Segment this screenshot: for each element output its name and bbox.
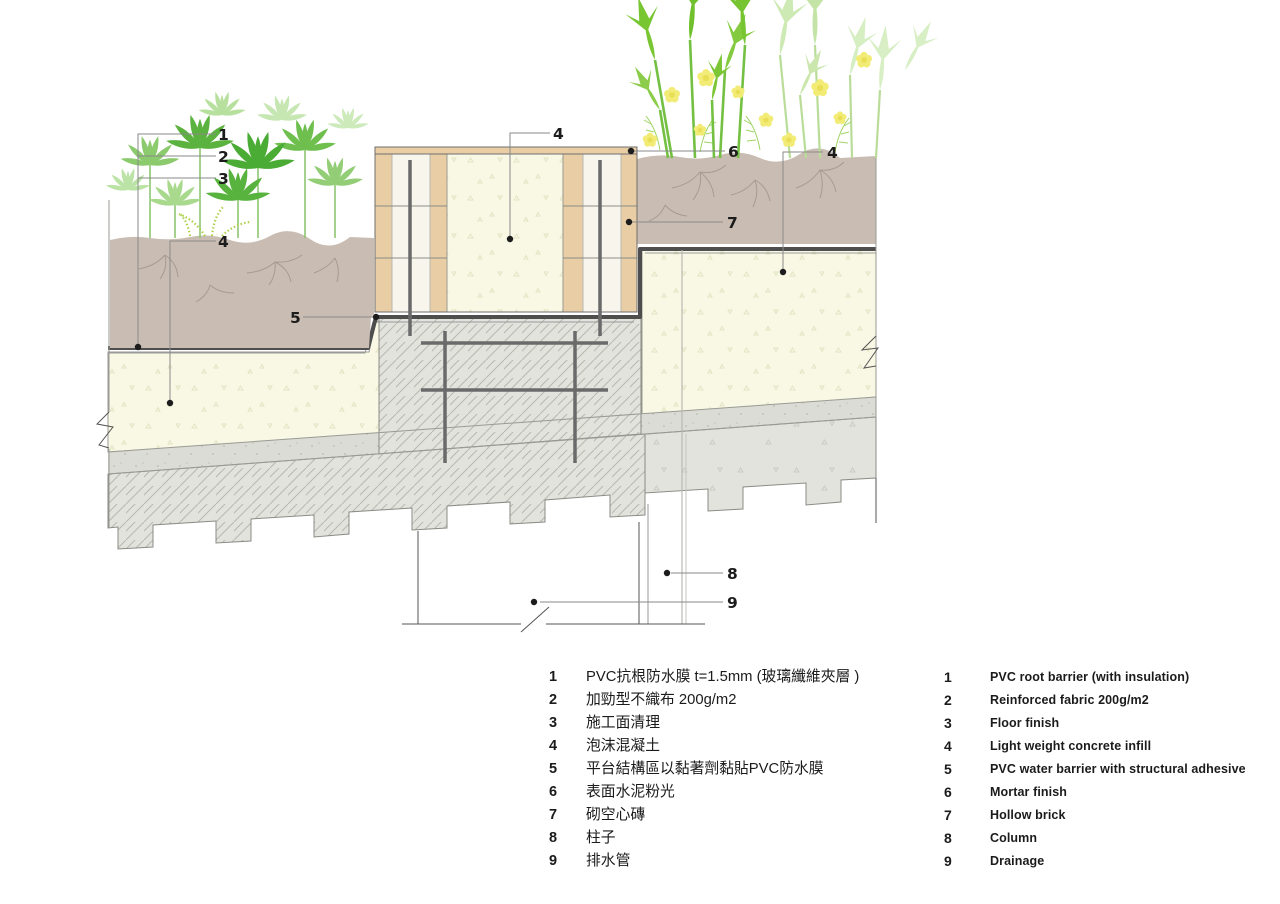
legend-text: 砌空心磚 <box>586 804 645 827</box>
legend-text: 排水管 <box>586 850 630 873</box>
legend-row: 5PVC water barrier with structural adhes… <box>944 758 1280 781</box>
callout-8: 8 <box>727 565 738 583</box>
legend-num: 3 <box>549 712 565 735</box>
legend-num: 3 <box>944 712 960 735</box>
legend-text: 平台結構區以黏著劑黏貼PVC防水膜 <box>586 758 824 781</box>
legend-row: 4泡沫混凝土 <box>549 735 941 758</box>
legend-text: Drainage <box>990 850 1044 873</box>
flowers <box>643 52 872 147</box>
legend-num: 8 <box>549 827 565 850</box>
callout-4-left: 4 <box>218 233 229 251</box>
legend-row: 2加勁型不織布 200g/m2 <box>549 689 941 712</box>
legend-row: 6Mortar finish <box>944 781 1280 804</box>
callout-9: 9 <box>727 594 738 612</box>
mortar-cap <box>375 147 637 154</box>
fern <box>179 206 250 236</box>
callout-5: 5 <box>290 309 301 327</box>
legend-row: 7Hollow brick <box>944 804 1280 827</box>
soil-left <box>110 231 374 348</box>
legend-row: 4Light weight concrete infill <box>944 735 1280 758</box>
legend-row: 9Drainage <box>944 850 1280 873</box>
legend-text: Reinforced fabric 200g/m2 <box>990 689 1149 712</box>
legend-english: 1PVC root barrier (with insulation) 2Rei… <box>944 666 1280 873</box>
legend-num: 9 <box>549 850 565 873</box>
construction-detail-sheet: 1 2 3 4 5 4 6 4 7 8 9 1PVC抗根防水膜 t=1.5mm … <box>0 0 1280 904</box>
break-mark-bottom <box>521 607 549 632</box>
legend-num: 4 <box>549 735 565 758</box>
callout-4-right: 4 <box>827 144 838 162</box>
legend-text: Mortar finish <box>990 781 1067 804</box>
planter-wall <box>375 147 637 336</box>
callout-7: 7 <box>727 214 738 232</box>
legend-num: 2 <box>549 689 565 712</box>
legend-row: 8Column <box>944 827 1280 850</box>
legend-text: PVC抗根防水膜 t=1.5mm (玻璃纖維夾層 ) <box>586 666 859 689</box>
soil-right <box>637 148 876 244</box>
legend-num: 5 <box>549 758 565 781</box>
legend-row: 5平台結構區以黏著劑黏貼PVC防水膜 <box>549 758 941 781</box>
legend-row: 1PVC抗根防水膜 t=1.5mm (玻璃纖維夾層 ) <box>549 666 941 689</box>
legend-num: 8 <box>944 827 960 850</box>
legend-text: 柱子 <box>586 827 616 850</box>
lightweight-concrete-right <box>642 249 876 417</box>
legend-text: 表面水泥粉光 <box>586 781 675 804</box>
legend-num: 6 <box>944 781 960 804</box>
brick-core-right <box>583 154 621 312</box>
legend-num: 9 <box>944 850 960 873</box>
legend-row: 1PVC root barrier (with insulation) <box>944 666 1280 689</box>
legend-text: PVC root barrier (with insulation) <box>990 666 1189 689</box>
wall-concrete-infill <box>447 154 563 312</box>
legend-num: 7 <box>549 804 565 827</box>
legend-num: 5 <box>944 758 960 781</box>
callout-3: 3 <box>218 170 229 188</box>
legend-text: PVC water barrier with structural adhesi… <box>990 758 1246 781</box>
legend-row: 8柱子 <box>549 827 941 850</box>
legend-row: 3Floor finish <box>944 712 1280 735</box>
legend-row: 9排水管 <box>549 850 941 873</box>
legend-chinese: 1PVC抗根防水膜 t=1.5mm (玻璃纖維夾層 ) 2加勁型不織布 200g… <box>549 666 941 873</box>
legend-num: 1 <box>944 666 960 689</box>
callout-2: 2 <box>218 148 229 166</box>
legend-num: 4 <box>944 735 960 758</box>
legend-row: 7砌空心磚 <box>549 804 941 827</box>
legend-row: 3施工面清理 <box>549 712 941 735</box>
callout-1: 1 <box>218 126 229 144</box>
legend-text: Hollow brick <box>990 804 1066 827</box>
plants-right <box>622 0 944 158</box>
footing-hatched <box>379 318 641 454</box>
legend-num: 2 <box>944 689 960 712</box>
legend-text: Light weight concrete infill <box>990 735 1151 758</box>
legend-num: 1 <box>549 666 565 689</box>
legend-num: 7 <box>944 804 960 827</box>
legend-row: 6表面水泥粉光 <box>549 781 941 804</box>
callout-4-top: 4 <box>553 125 564 143</box>
legend-text: 加勁型不織布 200g/m2 <box>586 689 736 712</box>
plants-left <box>106 91 369 238</box>
legend-text: Floor finish <box>990 712 1059 735</box>
legend-text: 泡沫混凝土 <box>586 735 660 758</box>
legend-num: 6 <box>549 781 565 804</box>
callout-6: 6 <box>728 143 739 161</box>
legend-row: 2Reinforced fabric 200g/m2 <box>944 689 1280 712</box>
legend-text: 施工面清理 <box>586 712 660 735</box>
legend-text: Column <box>990 827 1037 850</box>
